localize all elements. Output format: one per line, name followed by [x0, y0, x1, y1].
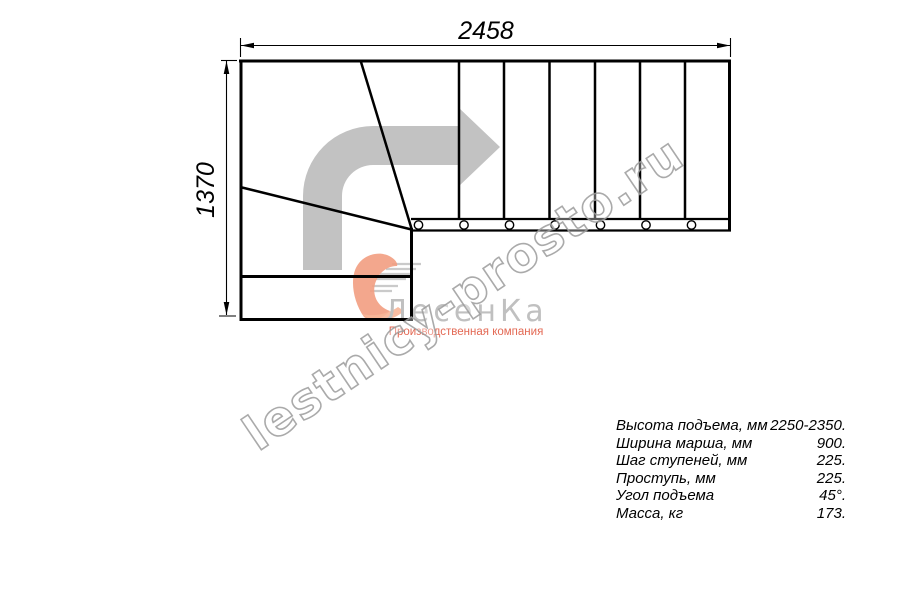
spec-label: Шаг ступеней, мм [616, 452, 747, 470]
dimension-arrow-top [224, 61, 230, 74]
spec-label: Высота подъема, мм [616, 417, 768, 435]
spec-table: Высота подъема, мм 2250-2350. Ширина мар… [616, 417, 846, 523]
spec-row: Угол подъема 45°. [616, 487, 846, 505]
stair-drawing-page: ЛесенКа Производственная компания [0, 0, 900, 600]
baluster-circle [414, 221, 422, 229]
width-dimension-label: 2458 [457, 17, 514, 45]
height-dimension-label: 1370 [192, 162, 220, 218]
spec-row: Масса, кг 173. [616, 505, 846, 523]
baluster-circle [460, 221, 468, 229]
spec-label: Ширина марша, мм [616, 435, 752, 453]
flow-arrow-shape [303, 107, 500, 270]
spec-row: Проступь, мм 225. [616, 470, 846, 488]
spec-value: 900. [817, 435, 846, 453]
spec-value: 225. [817, 470, 846, 488]
dimension-arrow-bottom [224, 302, 230, 315]
spec-value: 45°. [819, 487, 846, 505]
baluster-circle [642, 221, 650, 229]
flow-arrow [303, 107, 500, 270]
spec-label: Масса, кг [616, 505, 683, 523]
spec-row: Шаг ступеней, мм 225. [616, 452, 846, 470]
spec-row: Ширина марша, мм 900. [616, 435, 846, 453]
spec-row: Высота подъема, мм 2250-2350. [616, 417, 846, 435]
spec-label: Проступь, мм [616, 470, 716, 488]
dimension-arrow-left [241, 43, 254, 49]
width-dimension: 2458 [241, 17, 731, 57]
height-dimension: 1370 [192, 61, 237, 317]
dimension-arrow-right [717, 43, 730, 49]
spec-value: 225. [817, 452, 846, 470]
spec-label: Угол подъема [616, 487, 714, 505]
baluster-circle [687, 221, 695, 229]
spec-value: 173. [817, 505, 846, 523]
spec-value: 2250-2350. [770, 417, 846, 435]
